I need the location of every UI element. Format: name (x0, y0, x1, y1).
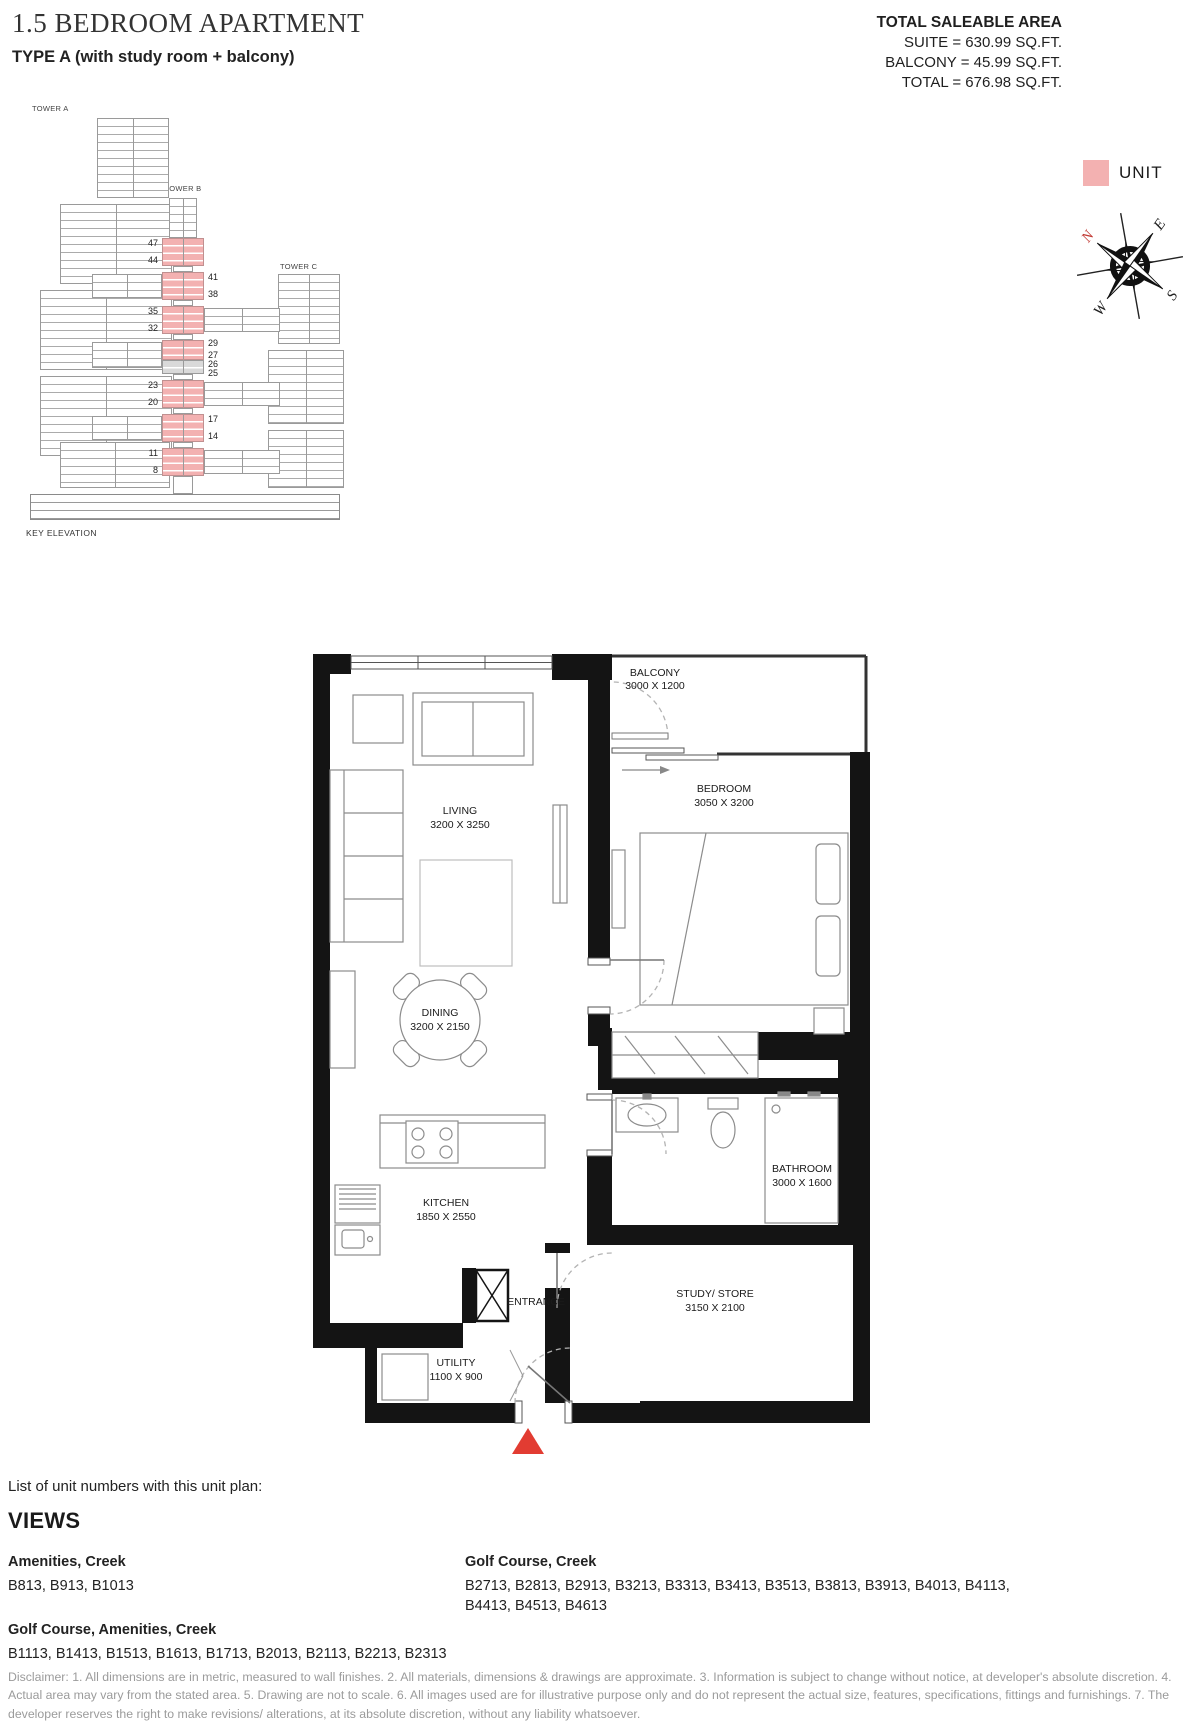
floor-number: 20 (134, 397, 158, 407)
toilet (708, 1098, 738, 1148)
key-elevation-caption: KEY ELEVATION (26, 528, 97, 538)
view-group-title: Golf Course, Amenities, Creek (8, 1620, 448, 1640)
rug (420, 860, 512, 966)
washing-machine (382, 1354, 428, 1400)
tower-b-wing (92, 416, 162, 440)
floor-number: 17 (208, 414, 232, 424)
page-subtitle: TYPE A (with study room + balcony) (12, 48, 295, 67)
view-group-title: Amenities, Creek (8, 1552, 448, 1572)
room-dims-bedroom: 3050 X 3200 (694, 797, 754, 809)
side-table (353, 695, 403, 743)
compass-east: E (1150, 216, 1169, 234)
wardrobe (612, 1032, 758, 1078)
shaft-box (476, 1270, 508, 1321)
highlighted-floors (162, 272, 204, 300)
views-heading: VIEWS (8, 1508, 80, 1534)
floor-number: 41 (208, 272, 232, 282)
floor-number: 25 (208, 368, 232, 378)
tower-b-wing (204, 450, 280, 474)
room-dims-utility: 1100 X 900 (430, 1371, 483, 1383)
unit-list-intro: List of unit numbers with this unit plan… (8, 1478, 262, 1495)
area-suite: SUITE = 630.99 SQ.FT. (877, 33, 1062, 53)
tower-a-block (97, 118, 169, 198)
walls (313, 654, 870, 1423)
tower-c-block (278, 274, 340, 344)
tower-a-label: TOWER A (32, 104, 69, 113)
wall-console (553, 805, 567, 903)
unit-legend: UNIT (1083, 160, 1163, 186)
highlighted-floors (162, 380, 204, 408)
tower-c-label: TOWER C (280, 262, 317, 271)
highlighted-floors (162, 238, 204, 266)
room-label-bedroom: BEDROOM (697, 783, 751, 795)
compass-main-points (1074, 210, 1185, 321)
tower-b-wing (204, 308, 280, 332)
floor-number: 32 (134, 323, 158, 333)
stove (406, 1121, 458, 1163)
core-connector (173, 476, 193, 494)
room-label-living: LIVING (443, 805, 477, 817)
disclaimer-text: Disclaimer: 1. All dimensions are in met… (8, 1668, 1194, 1723)
floor-number: 38 (208, 289, 232, 299)
room-label-kitchen: KITCHEN (423, 1197, 469, 1209)
shower (765, 1092, 838, 1223)
kitchen-sink (335, 1225, 380, 1255)
room-label-balcony: BALCONY (630, 667, 680, 679)
highlighted-floors (162, 306, 204, 334)
unit-legend-label: UNIT (1119, 163, 1163, 183)
view-group-units: B1113, B1413, B1513, B1613, B1713, B2013… (8, 1644, 448, 1664)
floor-number: 23 (134, 380, 158, 390)
room-dims-dining: 3200 X 2150 (410, 1021, 470, 1033)
bed (640, 833, 848, 1005)
compass-south: S (1164, 288, 1182, 304)
area-balcony: BALCONY = 45.99 SQ.FT. (877, 53, 1062, 73)
console (330, 971, 355, 1068)
saleable-area-summary: TOTAL SALEABLE AREA SUITE = 630.99 SQ.FT… (877, 12, 1062, 93)
kitchen-counter (380, 1115, 545, 1168)
bedroom-sliding-window (612, 748, 718, 760)
entrance-marker-icon (512, 1428, 544, 1454)
room-label-entrance: ENTRANCE (507, 1296, 565, 1308)
tower-b-wing (204, 382, 280, 406)
sofa (330, 770, 403, 942)
tower-b-wing (92, 342, 162, 368)
floor-number: 8 (134, 465, 158, 475)
floor-number: 35 (134, 306, 158, 316)
floor-number: 44 (134, 255, 158, 265)
sliding-arrow-icon (622, 766, 670, 774)
podium (30, 494, 340, 520)
room-dims-kitchen: 1850 X 2550 (416, 1211, 476, 1223)
nightstand (814, 1008, 844, 1034)
room-dims-study: 3150 X 2100 (685, 1302, 745, 1314)
gray-floors (162, 360, 204, 374)
highlighted-floors (162, 340, 204, 360)
tv-unit (413, 693, 533, 765)
floor-plan: BALCONY 3000 X 1200 BEDROOM 3050 X 3200 … (310, 648, 875, 1473)
unit-legend-swatch (1083, 160, 1109, 186)
room-label-study: STUDY/ STORE (676, 1288, 753, 1300)
view-group-units: B813, B913, B1013 (8, 1576, 448, 1596)
compass-north: N (1078, 227, 1098, 246)
view-group-units: B2713, B2813, B2913, B3213, B3313, B3413… (465, 1576, 1050, 1616)
floor-number: 29 (208, 338, 232, 348)
room-label-bathroom: BATHROOM (772, 1163, 832, 1175)
room-label-dining: DINING (422, 1007, 459, 1019)
floor-number: 47 (134, 238, 158, 248)
room-dims-bathroom: 3000 X 1600 (772, 1177, 832, 1189)
room-label-utility: UTILITY (436, 1357, 475, 1369)
dining-set (391, 971, 490, 1070)
floor-number: 11 (134, 448, 158, 458)
floor-number: 14 (208, 431, 232, 441)
area-heading: TOTAL SALEABLE AREA (877, 12, 1062, 33)
compass-west: W (1091, 298, 1112, 319)
tower-b-core-top (169, 198, 197, 238)
page-title: 1.5 BEDROOM APARTMENT (12, 8, 364, 39)
room-dims-living: 3200 X 3250 (430, 819, 490, 831)
highlighted-floors (162, 448, 204, 476)
tower-b-wing (92, 274, 162, 298)
living-window (351, 656, 552, 669)
highlighted-floors (162, 414, 204, 442)
views-column-right: Golf Course, Creek B2713, B2813, B2913, … (465, 1552, 1050, 1640)
key-elevation-diagram: TOWER A TOWER B TOWER C 47 44 41 38 35 3… (22, 98, 352, 544)
room-dims-balcony: 3000 X 1200 (625, 680, 685, 692)
fridge (335, 1185, 380, 1223)
area-total: TOTAL = 676.98 SQ.FT. (877, 73, 1062, 93)
compass-rose: N E S W (1066, 202, 1194, 335)
view-group-title: Golf Course, Creek (465, 1552, 1050, 1572)
dresser (612, 850, 625, 928)
